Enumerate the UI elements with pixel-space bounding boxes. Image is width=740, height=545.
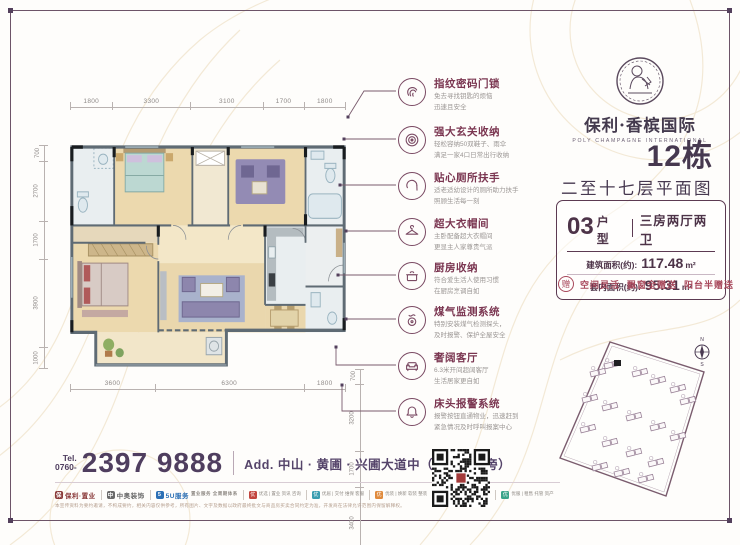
feature-item: 奢阔客厅6.3米开间超阔客厅生活居家更自如 — [398, 352, 573, 387]
feature-item: 指纹密码门锁免去寻找钥匙的烦恼迅速且安全 — [398, 78, 573, 113]
unit-type-row: 03 户 型 三房两厅两卫 — [567, 205, 715, 252]
gift-text: 空间灵活 飘窗全赠送 阳台半赠送 — [580, 278, 734, 291]
feature-title: 贴心厕所扶手 — [434, 172, 519, 185]
kitchen-storage-icon — [398, 262, 426, 290]
feature-desc: 在厨房烹调自如 — [434, 287, 499, 297]
partner-badge-icon: 优 — [375, 491, 383, 499]
feature-callout-list: 指纹密码门锁免去寻找钥匙的烦恼迅速且安全强大玄关收纳轻松容纳50双鞋子、雨伞满足… — [398, 0, 578, 460]
dimension-segment: 1800 — [70, 92, 112, 108]
tel-number: 2397 9888 — [82, 449, 223, 477]
feature-title: 强大玄关收纳 — [434, 126, 509, 139]
divider — [306, 490, 307, 500]
plan-scope-title: 二至十七层平面图 — [555, 175, 713, 199]
partner-logo-icon: 保 — [55, 491, 63, 499]
divider — [369, 490, 370, 500]
partner-badge: 优优服 | 租售 托管 资产 — [501, 491, 553, 499]
feature-desc: 轻松容纳50双鞋子、雨伞 — [434, 140, 509, 150]
gift-row: 赠 空间灵活 飘窗全赠送 阳台半赠送 — [558, 276, 728, 292]
feature-desc: 6.3米开间超阔客厅 — [434, 366, 489, 376]
feature-item: 煤气监测系统特别安装煤气检测探头，及时报警、保护全屋安全 — [398, 306, 573, 341]
feature-desc: 符合爱生活人使用习惯 — [434, 276, 499, 286]
divider — [150, 490, 151, 500]
feature-item: 超大衣帽间主卧配备超大衣帽间更显主人家尊贵气派 — [398, 218, 573, 253]
dimension-segment: 2700 — [32, 161, 48, 221]
feature-desc: 免去寻找钥匙的烦恼 — [434, 92, 500, 102]
fingerprint-lock-icon — [398, 78, 426, 106]
brand-name-cn: 保利·香槟国际 — [557, 112, 723, 136]
divider — [233, 451, 234, 475]
frame-corner — [8, 8, 13, 13]
grab-bar-icon — [398, 172, 426, 200]
alarm-bell-icon — [398, 398, 426, 426]
partner-badge-icon: 优 — [501, 491, 509, 499]
gas-detector-icon — [398, 306, 426, 334]
feature-desc: 迅速且安全 — [434, 103, 500, 113]
feature-title: 奢阔客厅 — [434, 352, 489, 365]
compass-icon: N S — [695, 337, 709, 368]
feature-desc: 紧急情况及时呼叫报案中心 — [434, 423, 519, 433]
dimension-segment: 1700 — [32, 221, 48, 259]
entry-storage-icon — [398, 126, 426, 154]
feature-item: 床头报警系统报警按钮直通物业，迅速赶到紧急情况及时呼叫报案中心 — [398, 398, 573, 433]
feature-title: 超大衣帽间 — [434, 218, 493, 231]
dimension-segment: 700 — [32, 145, 48, 161]
tel-label: Tel. 0760- — [55, 454, 77, 473]
feature-title: 床头报警系统 — [434, 398, 519, 411]
feature-desc: 特别安装煤气检测探头， — [434, 320, 506, 330]
dimension-segment: 3900 — [32, 259, 48, 346]
gift-badge-icon: 赠 — [558, 276, 574, 292]
feature-item: 厨房收纳符合爱生活人使用习惯在厨房烹调自如 — [398, 262, 573, 297]
address-label: Add. — [244, 458, 274, 472]
dimension-segment: 1700 — [263, 92, 303, 108]
unit-layout: 三房两厅两卫 — [640, 210, 715, 248]
feature-desc: 照顾生活每一刻 — [434, 197, 519, 207]
wardrobe-hanger-icon — [398, 218, 426, 246]
wechat-qr-code — [432, 449, 490, 507]
unit-number: 03 — [567, 215, 594, 239]
divider — [243, 490, 244, 500]
divider — [632, 219, 633, 237]
dimension-segment: 3300 — [112, 92, 190, 108]
partner-logo: 中中奥装饰 — [107, 490, 145, 500]
unit-number-suffix: 户 型 — [597, 213, 625, 247]
tel-area-code: 0760- — [55, 463, 77, 472]
dimension-segment: 1000 — [32, 347, 48, 369]
poly-lady-emblem-icon — [614, 55, 666, 107]
partner-badge-icon: 优 — [249, 491, 257, 499]
feature-title: 厨房收纳 — [434, 262, 499, 275]
partner-logo: 55U服务置业服务 全周期体系 — [156, 490, 238, 500]
divider — [495, 490, 496, 500]
feature-item: 强大玄关收纳轻松容纳50双鞋子、雨伞满足一家4口日常出行收纳 — [398, 126, 573, 161]
floor-plan — [70, 145, 346, 369]
frame-corner — [8, 518, 13, 523]
frame-corner — [727, 8, 732, 13]
title-block: 12栋 二至十七层平面图 — [555, 142, 713, 199]
dimension-chain-top: 18003300310017001800 — [70, 92, 346, 108]
built-area-value: 117.48 — [641, 255, 683, 271]
partner-badge: 优优装 | 焕新 软装 整装 — [375, 491, 427, 499]
built-area-label: 建筑面积(约): — [586, 259, 637, 271]
partner-logo: 保保利·置业 — [55, 490, 96, 500]
feature-title: 指纹密码门锁 — [434, 78, 500, 91]
feature-desc: 报警按钮直通物业，迅速赶到 — [434, 412, 519, 422]
disclaimer-text: 本宣传资料为要约邀请，不构成要约，相关内容仅供参考，所有图片、文字及数据以政府最… — [55, 503, 615, 509]
divider — [101, 490, 102, 500]
partner-logo-icon: 5 — [156, 491, 164, 499]
partner-badge: 优优选 | 置业 资讯 咨询 — [249, 491, 301, 499]
floorplan-flyer: 18003300310017001800 360063001800 700270… — [0, 0, 740, 545]
partner-badge: 优优居 | 交付 维保 客服 — [312, 491, 364, 499]
feature-desc: 更显主人家尊贵气派 — [434, 243, 493, 253]
frame-corner — [727, 518, 732, 523]
feature-desc: 满足一家4口日常出行收纳 — [434, 151, 509, 161]
feature-title: 煤气监测系统 — [434, 306, 506, 319]
feature-desc: 主卧配备超大衣帽间 — [434, 232, 493, 242]
svg-text:S: S — [700, 362, 704, 368]
partner-logo-icon: 中 — [107, 491, 115, 499]
feature-desc: 适老适幼设计的厕所助力扶手 — [434, 186, 519, 196]
dimension-chain-bottom: 360063001800 — [70, 374, 346, 390]
partner-badge-icon: 优 — [312, 491, 320, 499]
dimension-segment: 6300 — [155, 374, 304, 390]
dimension-chain-left: 7002700170039001000 — [32, 145, 48, 369]
dimension-segment: 3600 — [70, 374, 155, 390]
building-number: 12栋 — [555, 142, 713, 172]
built-area-unit: m² — [685, 260, 695, 270]
site-plan: N S — [552, 332, 724, 504]
feature-item: 贴心厕所扶手适老适幼设计的厕所助力扶手照顾生活每一刻 — [398, 172, 573, 207]
feature-desc: 及时报警、保护全屋安全 — [434, 331, 506, 341]
svg-text:N: N — [700, 337, 704, 343]
dimension-segment: 3100 — [190, 92, 263, 108]
callout-leader-lines — [330, 75, 402, 425]
built-area-row: 建筑面积(约): 117.48 m² — [567, 255, 715, 271]
sofa-icon — [398, 352, 426, 380]
feature-desc: 生活居家更自如 — [434, 377, 489, 387]
